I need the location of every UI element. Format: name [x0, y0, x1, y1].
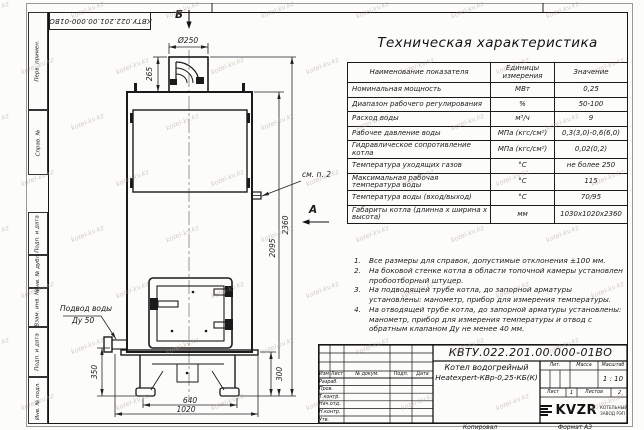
- note-number: 1.: [354, 256, 369, 266]
- mass-label: Масса: [570, 361, 598, 370]
- chimney-elbow: [170, 62, 204, 85]
- table-row: Рабочее давление водыМПа (кгс/см²)0,3(3,…: [348, 126, 627, 141]
- sheets-value: 2: [611, 388, 628, 397]
- spec-cell: 115: [555, 173, 627, 191]
- spec-header-row: Наименование показателя Единицы измерени…: [348, 63, 627, 82]
- tb-row-razrab: Разраб.: [319, 379, 344, 386]
- kvzr-logo-icon: [540, 405, 552, 416]
- notes-list: 1.Все размеры для справок, допустимые от…: [354, 256, 626, 334]
- spec-cell: МПа (кгс/см²): [491, 140, 555, 158]
- table-row: Расход водым³/ч9: [348, 111, 627, 126]
- dim-total-height: 2360: [281, 210, 291, 240]
- dimension-arrowheads: [100, 45, 293, 415]
- note-number: 3.: [354, 285, 369, 305]
- spec-cell: 50-100: [555, 97, 627, 112]
- spec-header-value: Значение: [555, 63, 627, 82]
- table-row: Температура уходящих газов°Сне более 250: [348, 158, 627, 173]
- furnace-door: [149, 278, 233, 348]
- dim-base-height: 300: [275, 359, 285, 389]
- list-item: 4.На отводящей трубе котла, до запорной …: [354, 305, 626, 334]
- sheets-label: Листов: [577, 388, 611, 397]
- spec-cell: МВт: [491, 82, 555, 97]
- section-b-label: Б: [175, 9, 183, 21]
- sheet-label: Лист: [540, 388, 566, 397]
- lit-label: Лит.: [540, 361, 570, 370]
- rev-col-izm: Изм: [318, 371, 330, 378]
- kvzr-logo-text: KVZR: [555, 403, 597, 418]
- spec-cell: не более 250: [555, 158, 627, 173]
- spec-cell: %: [491, 97, 555, 112]
- spec-cell: Габариты котла (длинна х ширина х высота…: [348, 205, 491, 223]
- spec-cell: Гидравлическое сопротивление котла: [348, 140, 491, 158]
- water-inlet-label-line1: Подвод воды: [60, 304, 112, 313]
- boiler-outline: [127, 57, 252, 352]
- logo-sub-line2: ЗАВОД РЭП: [600, 411, 627, 416]
- tb-row-prov: Пров.: [319, 386, 344, 393]
- spec-cell: 0,25: [555, 82, 627, 97]
- dim-chimney-height: 265: [145, 59, 155, 89]
- scale-label: Масштаб: [598, 361, 628, 370]
- dim-body-height: 2095: [268, 233, 278, 263]
- rev-col-data: Дата: [412, 371, 433, 378]
- format-label: Формат А3: [545, 424, 605, 430]
- callout-see-note-2: см. п. 2: [302, 170, 331, 179]
- scale-value: 1 : 10: [598, 370, 628, 388]
- kvzr-logo-subtext: КОТЕЛЬНЫЙ ЗАВОД РЭП: [600, 405, 627, 415]
- spec-cell: 0,3(3,0)-0,6(6,0): [555, 126, 627, 141]
- table-row: Номинальная мощностьМВт0,25: [348, 82, 627, 97]
- spec-cell: Температура воды (вход/выход): [348, 190, 491, 205]
- spec-table: Наименование показателя Единицы измерени…: [347, 62, 628, 224]
- spec-cell: МПа (кгс/см²): [491, 126, 555, 141]
- spec-cell: Максимальная рабочая температура воды: [348, 173, 491, 191]
- tb-row-tkontr: Т.контр.: [319, 394, 344, 401]
- tb-row-nachotd: Нач.отд.: [319, 401, 344, 408]
- company-logo: KVZR КОТЕЛЬНЫЙ ЗАВОД РЭП: [540, 397, 628, 424]
- spec-cell: 9: [555, 111, 627, 126]
- spec-cell: Температура уходящих газов: [348, 158, 491, 173]
- spec-cell: °С: [491, 158, 555, 173]
- title-block-doc-number: КВТУ.022.201.00.000-01ВО: [433, 344, 628, 361]
- table-row: Максимальная рабочая температура воды°С1…: [348, 173, 627, 191]
- table-row: Габариты котла (длинна х ширина х высота…: [348, 205, 627, 223]
- table-row: Температура воды (вход/выход)°С70/95: [348, 190, 627, 205]
- note-text: Все размеры для справок, допустимые откл…: [369, 256, 626, 266]
- list-item: 1.Все размеры для справок, допустимые от…: [354, 256, 626, 266]
- product-name-line2: Heatexpert-КВр-0,25-КБ(К): [433, 372, 540, 383]
- view-a-label: А: [309, 204, 317, 216]
- spec-cell: м³/ч: [491, 111, 555, 126]
- spec-table-title: Техническая характеристика: [347, 35, 628, 51]
- tb-row-nkontr: Н.контр.: [319, 409, 344, 416]
- sampling-fitting: [252, 192, 261, 199]
- spec-cell: °С: [491, 173, 555, 191]
- spec-cell: °С: [491, 190, 555, 205]
- base-foundation: [121, 350, 258, 396]
- copy-label: Копировал: [450, 424, 510, 430]
- water-inlet-label-line2: Ду 50: [72, 316, 94, 325]
- dim-total-width: 1020: [166, 405, 206, 414]
- dim-base-width: 640: [175, 396, 205, 405]
- spec-cell: 0,02(0,2): [555, 140, 627, 158]
- list-item: 2.На боковой стенке котла в области топо…: [354, 266, 626, 286]
- tb-row-utv: Утв.: [319, 417, 344, 424]
- rev-col-list: Лист: [330, 371, 344, 378]
- table-row: Гидравлическое сопротивление котлаМПа (к…: [348, 140, 627, 158]
- rev-col-doc: № докум.: [344, 371, 390, 378]
- note-text: На боковой стенке котла в области топочн…: [369, 266, 626, 286]
- note-text: На отводящей трубе котла, до запорной ар…: [369, 305, 626, 334]
- spec-cell: мм: [491, 205, 555, 223]
- dim-chimney-diameter: Ø250: [167, 36, 209, 45]
- note-number: 2.: [354, 266, 369, 286]
- note-text: На подводящей трубе котла, до запорной а…: [369, 285, 626, 305]
- table-row: Диапазон рабочего регулирования%50-100: [348, 97, 627, 112]
- spec-header-units: Единицы измерения: [491, 63, 555, 82]
- spec-cell: Рабочее давление воды: [348, 126, 491, 141]
- sheet-value: 1: [566, 388, 577, 397]
- note-number: 4.: [354, 305, 369, 334]
- drawing-sheet: Перв. примен. Справ. № Подп. и дата Инв.…: [0, 0, 644, 430]
- spec-cell: Диапазон рабочего регулирования: [348, 97, 491, 112]
- dim-inlet-height: 350: [90, 357, 100, 387]
- spec-header-name: Наименование показателя: [348, 63, 491, 82]
- spec-cell: 70/95: [555, 190, 627, 205]
- spec-cell: 1030х1020х2360: [555, 205, 627, 223]
- spec-cell: Расход воды: [348, 111, 491, 126]
- list-item: 3.На подводящей трубе котла, до запорной…: [354, 285, 626, 305]
- rev-col-podp: Подп.: [390, 371, 412, 378]
- spec-cell: Номинальная мощность: [348, 82, 491, 97]
- title-block: КВТУ.022.201.00.000-01ВО Котел водогрейн…: [318, 344, 628, 424]
